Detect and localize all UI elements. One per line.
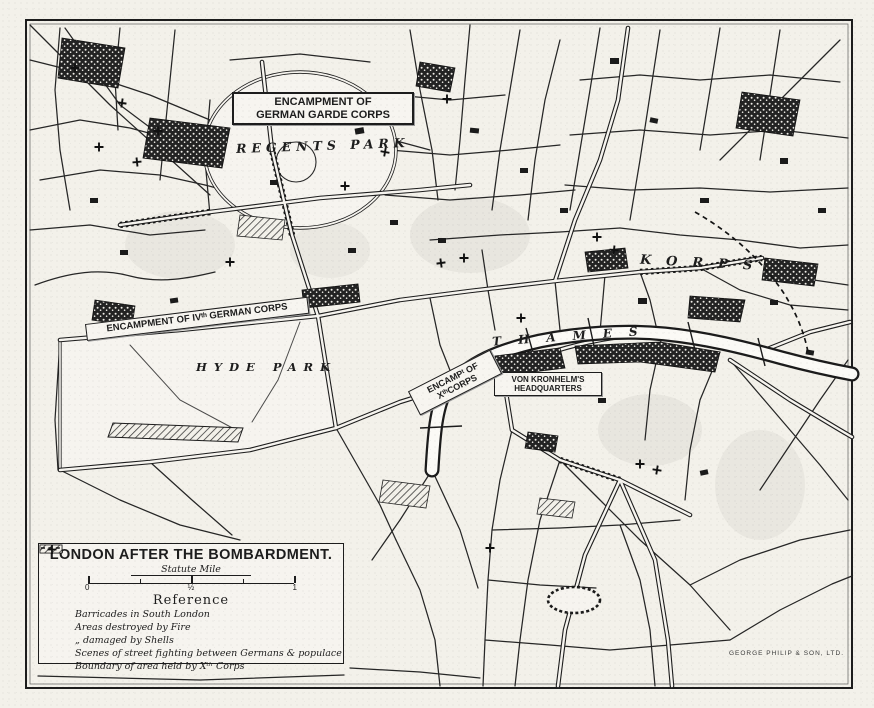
legend-item-label: „ damaged by Shells bbox=[75, 635, 174, 646]
hq-line1: VON KRONHELM'S bbox=[500, 375, 596, 384]
legend-item-label: Areas destroyed by Fire bbox=[75, 622, 191, 633]
legend-item-label: Barricades in South London bbox=[75, 609, 210, 620]
scale-ticks: 0 ½ 1 bbox=[85, 584, 297, 592]
scale-tick-0: 0 bbox=[85, 584, 89, 592]
scale-bar: Statute Mile 0 ½ 1 bbox=[88, 564, 294, 592]
legend-box: LONDON AFTER THE BOMBARDMENT. Statute Mi… bbox=[38, 543, 344, 664]
von-kronhelm-hq-label: VON KRONHELM'S HEADQUARTERS bbox=[494, 372, 602, 396]
map-page: ENCAMPMENT OF GERMAN GARDE CORPS REGENTS… bbox=[0, 0, 874, 708]
legend-item: Areas destroyed by Fire bbox=[39, 621, 343, 634]
publisher-credit: GEORGE PHILIP & SON, LTD. bbox=[729, 650, 844, 657]
scale-tick-half: ½ bbox=[188, 584, 195, 592]
scale-rule bbox=[88, 577, 294, 584]
reference-heading: Reference bbox=[39, 593, 343, 608]
map-title: LONDON AFTER THE BOMBARDMENT. bbox=[39, 547, 343, 563]
legend-item-label: Boundary of area held by Xᵗʰ Corps bbox=[75, 661, 244, 672]
scale-label: Statute Mile bbox=[131, 564, 251, 576]
hyde-park-label: HYDE PARK bbox=[196, 360, 337, 374]
legend-item: Boundary of area held by Xᵗʰ Corps bbox=[39, 660, 343, 673]
legend-item-label: Scenes of street fighting between German… bbox=[75, 648, 342, 659]
legend-item: „ damaged by Shells bbox=[39, 634, 343, 647]
legend-item: Scenes of street fighting between German… bbox=[39, 647, 343, 660]
garde-line1: ENCAMPMENT OF bbox=[239, 96, 407, 109]
oval-ground bbox=[548, 587, 600, 613]
hq-line2: HEADQUARTERS bbox=[500, 384, 596, 393]
garde-line2: GERMAN GARDE CORPS bbox=[239, 109, 407, 122]
legend-item: Barricades in South London bbox=[39, 608, 343, 621]
garde-corps-encampment-label: ENCAMPMENT OF GERMAN GARDE CORPS bbox=[232, 92, 414, 125]
scale-tick-1: 1 bbox=[293, 584, 297, 592]
